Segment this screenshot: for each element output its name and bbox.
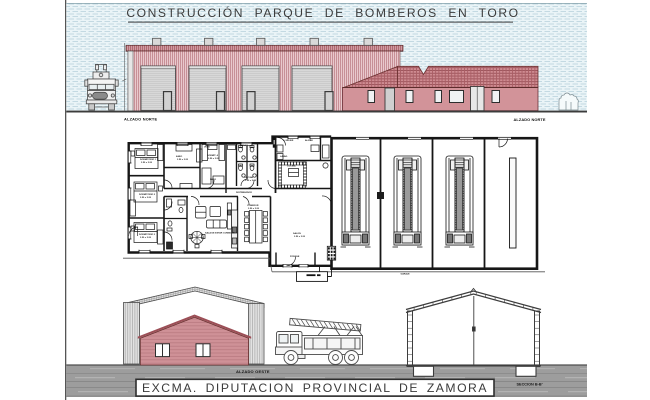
- svg-text:COMEDOR: COMEDOR: [247, 205, 259, 207]
- svg-text:ALJIBE: ALJIBE: [305, 139, 313, 142]
- svg-text:DISTRIBUIDOR: DISTRIBUIDOR: [236, 192, 252, 194]
- svg-text:EXCMA. DIPUTACION PROVINCIAL D: EXCMA. DIPUTACION PROVINCIAL DE ZAMORA: [142, 381, 488, 395]
- svg-text:3.50 x 3.20: 3.50 x 3.20: [140, 197, 152, 199]
- svg-text:DORMIT. 4: DORMIT. 4: [207, 154, 219, 157]
- svg-text:3.50 x 3.20: 3.50 x 3.20: [294, 236, 306, 238]
- svg-text:GARAJE: GARAJE: [401, 273, 411, 276]
- svg-text:SALON: SALON: [293, 232, 301, 235]
- svg-text:LAVAD.: LAVAD.: [280, 155, 288, 158]
- svg-text:OFICINA: OFICINA: [244, 176, 253, 179]
- svg-text:3.50 x 3.20: 3.50 x 3.20: [208, 158, 220, 160]
- svg-text:S. MUJER: S. MUJER: [283, 140, 294, 142]
- svg-text:VEST.: VEST.: [204, 147, 210, 149]
- svg-text:PASO: PASO: [210, 178, 216, 181]
- svg-text:ALZADO NORTE: ALZADO NORTE: [124, 117, 158, 122]
- svg-text:COCINA: COCINA: [287, 165, 296, 168]
- svg-text:BANOS: BANOS: [240, 144, 248, 147]
- svg-text:DORMITORIO 3: DORMITORIO 3: [139, 234, 156, 236]
- svg-text:SECCION B-B’: SECCION B-B’: [517, 383, 543, 387]
- svg-text:ALZADO NORTE: ALZADO NORTE: [514, 117, 546, 122]
- svg-text:3.50 x 3.20: 3.50 x 3.20: [140, 237, 152, 239]
- svg-text:CONSTRUCCIÓN PARQUE DE BOMBERO: CONSTRUCCIÓN PARQUE DE BOMBEROS EN TORO: [126, 5, 519, 20]
- svg-text:DORMITORIO 2: DORMITORIO 2: [139, 194, 156, 196]
- svg-text:ALZADO OESTE: ALZADO OESTE: [236, 369, 270, 374]
- svg-text:SALA DE ESTAR COMEDOR: SALA DE ESTAR COMEDOR: [205, 232, 235, 235]
- svg-text:ASEO: ASEO: [176, 155, 182, 158]
- svg-text:PORCHE: PORCHE: [290, 256, 300, 258]
- svg-text:3.50 x 3.20: 3.50 x 3.20: [177, 159, 189, 161]
- svg-text:3.50 x 3.20: 3.50 x 3.20: [248, 208, 260, 210]
- svg-text:DORMITORIO 1: DORMITORIO 1: [140, 159, 157, 161]
- svg-text:3.50 x 3.20: 3.50 x 3.20: [141, 162, 153, 164]
- svg-text:3.50 x 3.20: 3.50 x 3.20: [245, 180, 257, 182]
